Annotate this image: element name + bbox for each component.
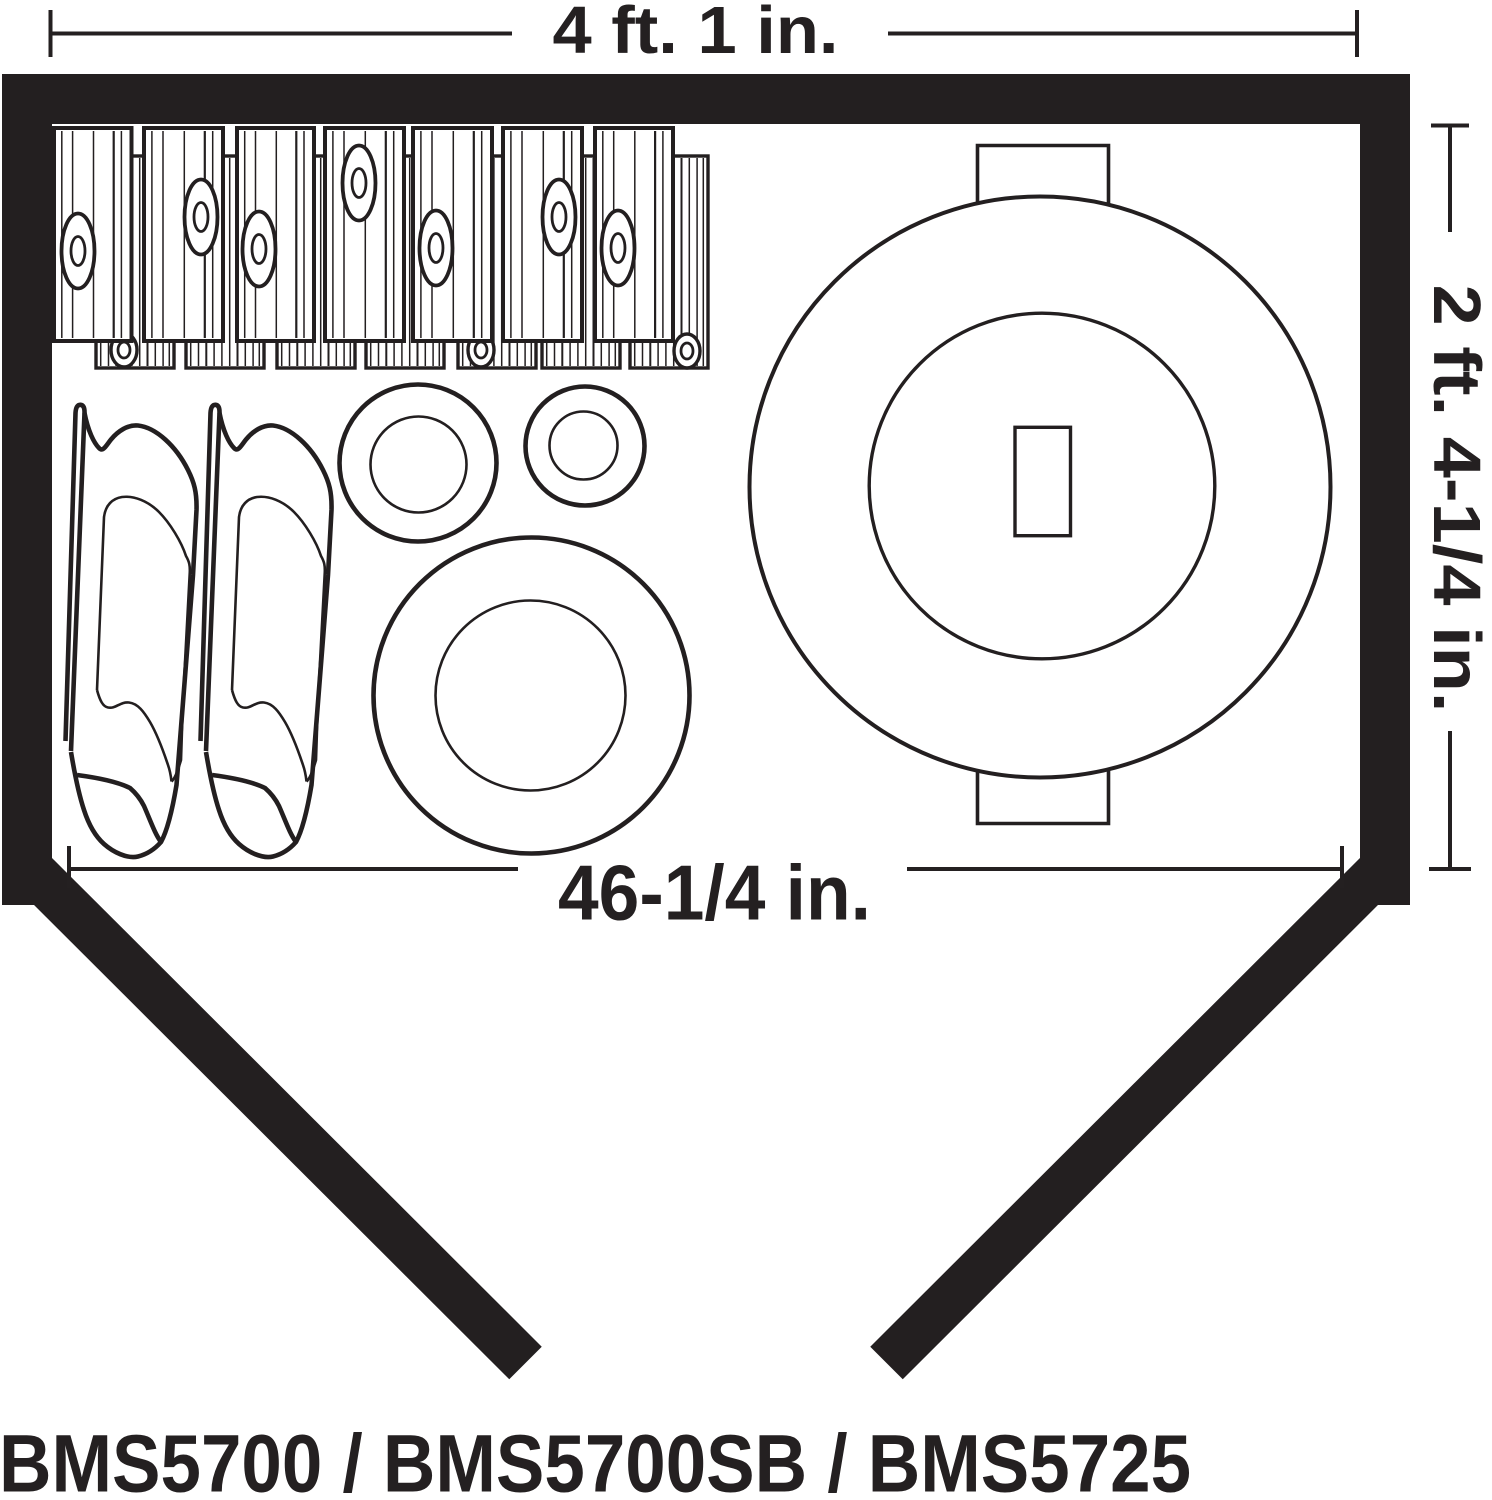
- svg-text:BMS5700 / BMS5700SB / BMS5725: BMS5700 / BMS5700SB / BMS5725: [0, 1419, 1191, 1500]
- svg-text:46-1/4 in.: 46-1/4 in.: [558, 849, 871, 937]
- svg-text:4 ft. 1 in.: 4 ft. 1 in.: [553, 0, 839, 68]
- svg-text:2 ft. 4-1/4 in.: 2 ft. 4-1/4 in.: [1419, 285, 1492, 713]
